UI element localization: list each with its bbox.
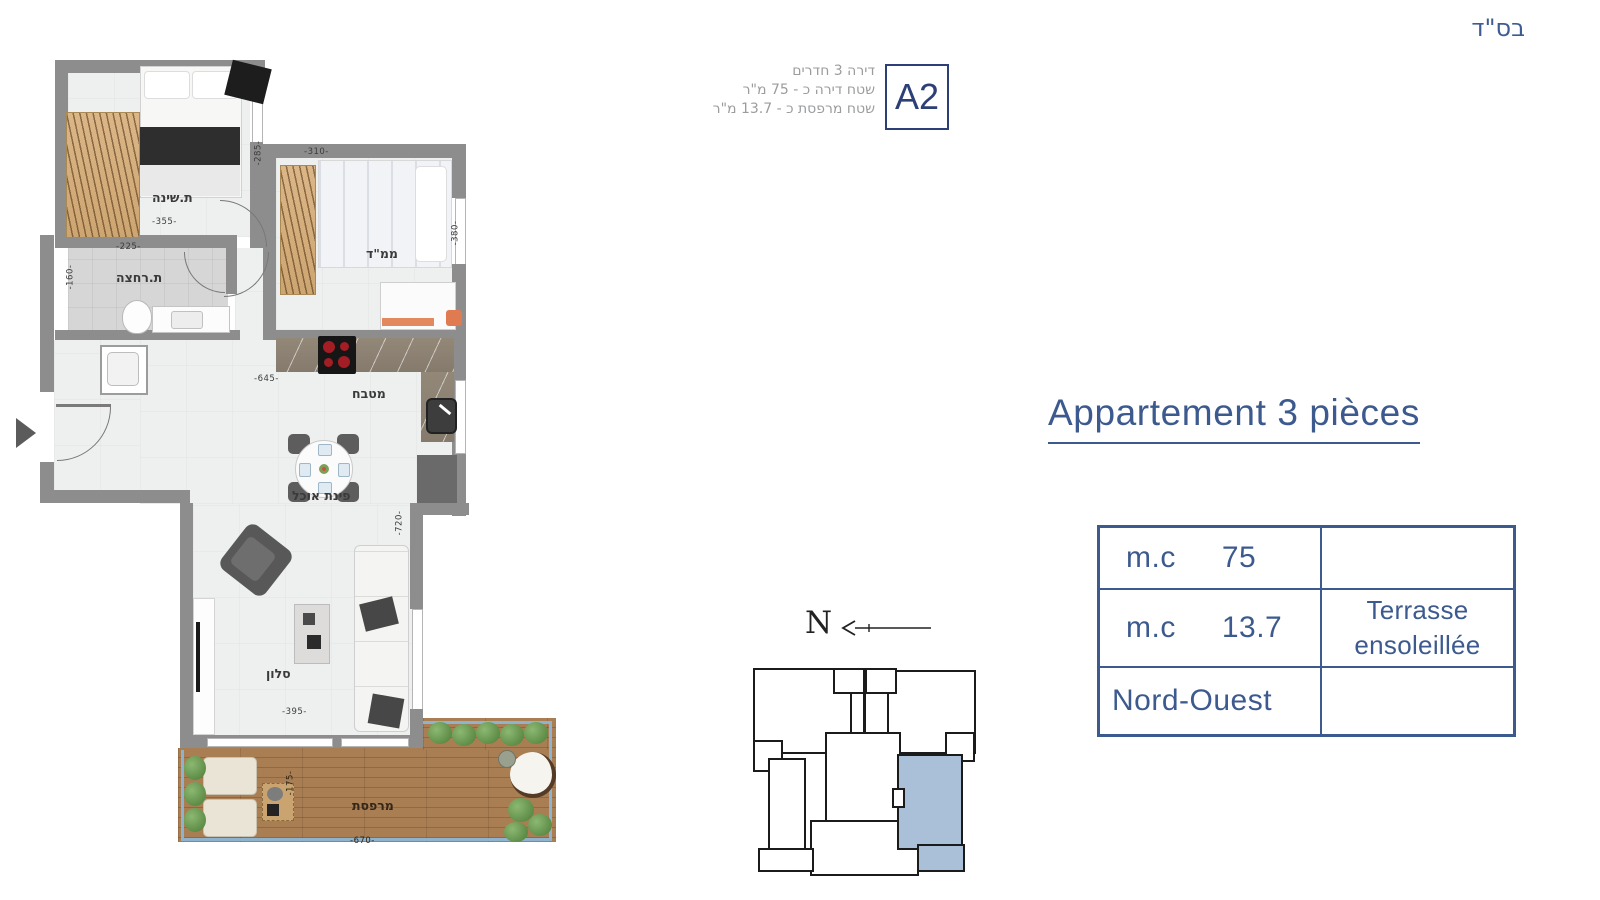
plant [476, 722, 500, 744]
dim-terrace-width: -670- [350, 836, 375, 846]
shower-tray [107, 352, 139, 386]
key-room [825, 732, 901, 831]
place-setting [299, 463, 311, 477]
building-key-plan [735, 640, 975, 870]
dim-bedroom-width: -355- [152, 217, 177, 227]
spec-value: 13.7 [1222, 611, 1282, 645]
spec-label: Nord-Ouest [1112, 684, 1272, 718]
plant [184, 808, 206, 832]
wall-living-left [180, 503, 193, 748]
dim-safe-room-width: -310- [304, 147, 329, 157]
place-setting [318, 444, 332, 456]
wall-bath-left [40, 235, 54, 392]
plant [428, 722, 452, 744]
compass-north-label: N [805, 605, 832, 641]
dim-terrace-height: -175- [285, 771, 295, 796]
bed-pillow [144, 71, 190, 99]
wall-safe-top [263, 144, 465, 158]
terrace-round-table [510, 752, 556, 798]
floorplan-sheet: בס"ד דירה 3 חדרים שטח דירה כ - 75 מ"ר שט… [0, 0, 1600, 900]
info-line-terrace: שטח מרפסת כ - 13.7 מ"ר [620, 100, 875, 119]
dim-bathroom-height: -160- [65, 265, 75, 290]
safe-room-label: ממ"ד [366, 246, 398, 261]
unit-badge-label: A2 [895, 76, 939, 118]
spec-note-empty [1322, 528, 1513, 590]
place-setting [338, 463, 350, 477]
compass-arrow-icon [839, 619, 934, 637]
unit-badge: A2 [885, 64, 949, 130]
terrace-pot [498, 750, 516, 768]
spec-row-orientation: Nord-Ouest [1100, 668, 1322, 734]
centerpiece [319, 464, 329, 474]
desk-rug [382, 318, 434, 326]
faucet [439, 404, 452, 415]
page-title: Appartement 3 pièces [1048, 392, 1420, 444]
entrance-arrow-icon [16, 418, 36, 448]
plant [500, 724, 524, 746]
kitchen-cabinet [417, 455, 457, 503]
lounge-chair [203, 799, 257, 837]
key-stem [863, 690, 866, 732]
plant [528, 814, 552, 836]
bed-pillow [415, 166, 447, 262]
key-room [758, 848, 814, 872]
bathroom-label: ת.רחצה [116, 270, 162, 285]
dim-living-height: -720- [394, 511, 404, 536]
desk-chair [446, 310, 462, 326]
dim-living-width: -395- [282, 707, 307, 717]
spec-note-empty [1322, 668, 1513, 734]
burner [338, 356, 350, 368]
lounge-chair [203, 757, 257, 795]
living-label: סלון [266, 666, 291, 681]
kitchen-sink [426, 398, 457, 434]
living-window-right [341, 738, 409, 747]
key-unit-notch [892, 788, 905, 808]
apartment-info: דירה 3 חדרים שטח דירה כ - 75 מ"ר שטח מרפ… [620, 62, 875, 119]
sofa-pillow [368, 693, 405, 728]
plant [452, 724, 476, 746]
page-title-text: Appartement 3 pièces [1048, 392, 1420, 433]
spec-note-text: Terrasse ensoleillée [1336, 593, 1499, 663]
key-room [865, 668, 897, 694]
compass: N [805, 605, 935, 645]
burner [323, 341, 335, 353]
bedroom-wardrobe [66, 112, 140, 238]
living-right-window [412, 609, 423, 711]
shower-unit [100, 345, 148, 395]
safe-room-wardrobe [280, 165, 316, 295]
bed-blanket [140, 127, 240, 165]
wall-safe-right [452, 144, 466, 198]
spec-label: m.c [1126, 611, 1176, 645]
terrace-label: מרפסת [352, 798, 394, 813]
wall-safe-left [263, 158, 276, 340]
info-line-rooms: דירה 3 חדרים [620, 62, 875, 81]
burner [340, 342, 349, 351]
bedroom-label: ת.שינה [152, 190, 193, 205]
spec-table: m.c 75 m.c 13.7 Terrasse ensoleillée Nor… [1097, 525, 1516, 737]
stove [318, 336, 356, 374]
armchair-cushion [229, 535, 277, 583]
key-highlighted-unit [897, 754, 963, 850]
living-window-left [207, 738, 333, 747]
key-room [833, 668, 865, 694]
dining-label: פינת אוכל [292, 488, 351, 503]
coffee-table [294, 604, 330, 664]
key-highlighted-unit-ext [917, 844, 965, 872]
info-line-area: שטח דירה כ - 75 מ"ר [620, 81, 875, 100]
table-decor [307, 635, 321, 649]
spec-row-area: m.c 75 [1100, 528, 1322, 590]
wall-hall-bottom [40, 490, 190, 503]
bsd-text: בס"ד [1440, 14, 1525, 42]
key-room [768, 758, 806, 862]
burner [324, 358, 333, 367]
dim-bedroom-height: -285- [253, 141, 263, 166]
dim-bathroom-width: -225- [116, 242, 141, 252]
tv [196, 622, 200, 692]
wall-living-right-up [410, 503, 423, 609]
kitchen-label: מטבח [352, 386, 386, 401]
table-decor [303, 613, 315, 625]
spec-value: 75 [1222, 541, 1256, 575]
kitchen-counter-top [276, 338, 454, 372]
plant [184, 782, 206, 806]
plant [524, 722, 548, 744]
plant [504, 822, 528, 842]
dim-kitchen-width: -645- [254, 374, 279, 384]
spec-row-terrace: m.c 13.7 [1100, 590, 1322, 668]
toilet [122, 300, 152, 334]
spec-label: m.c [1126, 541, 1176, 575]
wall-kitchen-back [276, 330, 466, 338]
side-table-item [267, 804, 279, 816]
plant [184, 756, 206, 780]
bathroom-sink [171, 311, 203, 329]
spec-note-terrace: Terrasse ensoleillée [1322, 590, 1513, 668]
bathroom-vanity [152, 306, 230, 333]
side-table-item [267, 787, 283, 801]
dim-safe-room-height: -380- [450, 221, 460, 246]
